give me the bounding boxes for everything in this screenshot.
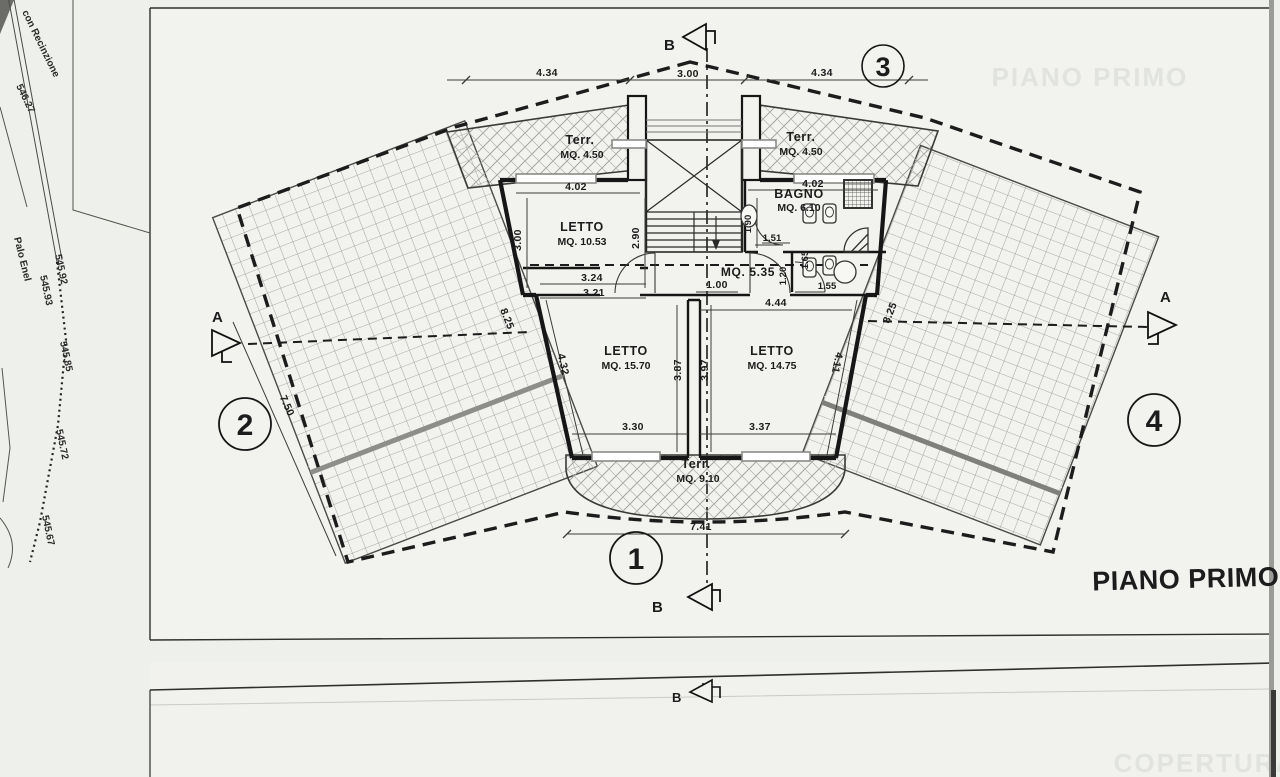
boiler (834, 261, 856, 283)
survey-elev-4: 545.67 (39, 514, 56, 547)
label-letto-se-area: MQ. 14.75 (747, 360, 796, 372)
node-4: 4 (1146, 405, 1163, 438)
dim-h-bagno: 1.90 (743, 215, 754, 234)
label-letto-nw-area: MQ. 10.53 (557, 236, 606, 248)
dim-corr-d: 4.44 (765, 297, 787, 309)
scanned-floorplan-page: PIANO PRIMO COPERTURA con Recinzione 546… (0, 0, 1280, 777)
dim-bath-a: 1.51 (763, 233, 782, 244)
dim-bath-b: 1.20 (778, 267, 789, 286)
dim-bath-d: 1.55 (818, 281, 837, 292)
survey-pole-label: Palo Enel (11, 236, 33, 283)
survey-elev-3: 545.72 (53, 428, 70, 461)
entry-step (612, 140, 646, 148)
dim-sw-h: 3.87 (672, 359, 684, 381)
dim-w-nw: 4.02 (565, 181, 587, 193)
left-margin-survey: con Recinzione 546.27 Palo Enel 545.92 5… (0, 0, 150, 568)
section-b-top-label: B (664, 37, 675, 54)
survey-fence-label: con Recinzione (19, 8, 61, 79)
dim-corr-b: 3.21 (583, 287, 605, 299)
label-terr-left-area: MQ. 4.50 (560, 149, 603, 161)
label-letto-nw: LETTO (560, 220, 604, 234)
dim-top-right: 4.34 (811, 67, 833, 79)
dim-se-w: 3.37 (749, 421, 771, 433)
dim-h-nw-a: 3.00 (512, 229, 524, 251)
dim-bath-c: 1.65 (800, 250, 811, 269)
dim-bottom: 7.41 (690, 521, 712, 533)
floor-plan-drawing: PIANO PRIMO COPERTURA con Recinzione 546… (0, 0, 1280, 777)
label-letto-se: LETTO (750, 344, 794, 358)
ghost-title-top: PIANO PRIMO (992, 62, 1189, 92)
label-letto-sw-area: MQ. 15.70 (601, 360, 650, 372)
label-terr-bottom: Terr. (681, 457, 710, 471)
entry-step (742, 140, 776, 148)
dim-corr-a: 3.24 (581, 272, 603, 284)
survey-fence-elev: 546.27 (13, 82, 36, 115)
section-a-right-label: A (1160, 289, 1171, 306)
scan-corner-shadow (1271, 690, 1276, 777)
label-letto-sw: LETTO (604, 344, 648, 358)
dim-top-left: 4.34 (536, 67, 558, 79)
scan-right-edge (1269, 0, 1274, 777)
node-2: 2 (237, 409, 254, 442)
label-bagno: BAGNO (774, 187, 824, 201)
label-terr-right: Terr. (786, 130, 815, 144)
node-1: 1 (628, 543, 645, 576)
page-title: PIANO PRIMO (1092, 562, 1280, 597)
label-terr-right-area: MQ. 4.50 (779, 146, 822, 158)
label-corridoio-area: MQ. 5.35 (721, 265, 775, 279)
dim-corr-c: 1.00 (706, 279, 728, 291)
dim-sw-w: 3.30 (622, 421, 644, 433)
section-b-bottom-label: B (652, 599, 663, 616)
survey-elev-0: 545.92 (52, 253, 69, 286)
shower (844, 180, 872, 208)
section-a-left-label: A (212, 309, 223, 326)
section-b-sheet2-label: B (672, 690, 681, 705)
node-3: 3 (875, 52, 890, 82)
label-bagno-area: MQ. 6.10 (777, 202, 820, 214)
dim-h-nw-b: 2.90 (630, 227, 642, 249)
label-terr-bottom-area: MQ. 9.10 (676, 473, 719, 485)
ghost-title-bottom: COPERTURA (1114, 748, 1280, 777)
survey-elev-1: 545.93 (37, 274, 54, 307)
dim-top-mid: 3.00 (677, 68, 699, 80)
survey-elev-2: 545.85 (57, 340, 74, 373)
label-terr-left: Terr. (565, 133, 594, 147)
dim-se-h: 3.97 (699, 359, 711, 381)
